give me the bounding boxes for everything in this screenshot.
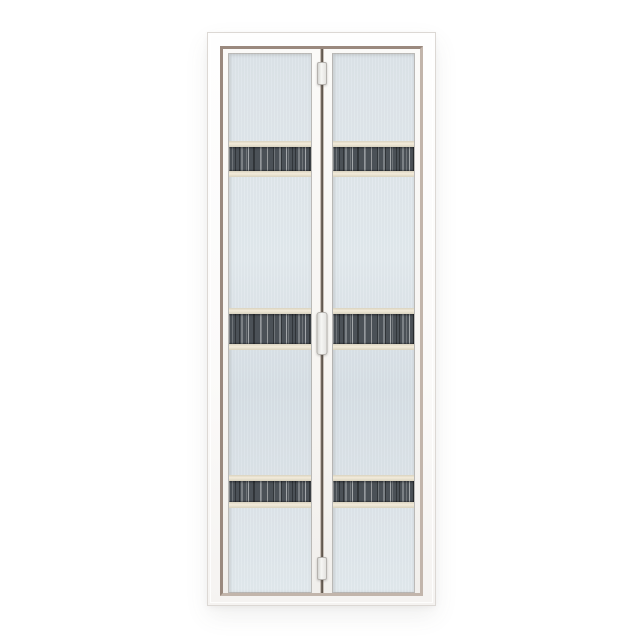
strip-woodgrain-center (333, 481, 415, 502)
fold-handle-icon (316, 312, 327, 355)
strip-woodgrain-center (333, 147, 415, 171)
strip-woodgrain-center (229, 147, 311, 171)
product-photo-canvas (0, 0, 640, 640)
accent-strip (333, 475, 415, 508)
accent-strip (229, 308, 311, 350)
top-pivot-hinge-icon (317, 62, 327, 85)
strip-cream-border-bottom (229, 502, 311, 508)
strip-cream-border-bottom (333, 502, 415, 508)
strip-cream-border-bottom (229, 344, 311, 350)
strip-cream-border-bottom (333, 344, 415, 350)
accent-strip (229, 475, 311, 508)
glass-panel-left (228, 53, 312, 593)
accent-strip (333, 141, 415, 177)
bifold-door (208, 33, 435, 605)
accent-strip (333, 308, 415, 350)
strip-cream-border-bottom (333, 171, 415, 177)
strip-woodgrain-center (229, 314, 311, 344)
strip-cream-border-bottom (229, 171, 311, 177)
door-leaf-left (223, 49, 320, 593)
accent-strip (229, 141, 311, 177)
bottom-pivot-hinge-icon (317, 557, 327, 580)
door-leaf-right (324, 49, 421, 593)
strip-woodgrain-center (229, 481, 311, 502)
strip-woodgrain-center (333, 314, 415, 344)
glass-panel-right (332, 53, 416, 593)
